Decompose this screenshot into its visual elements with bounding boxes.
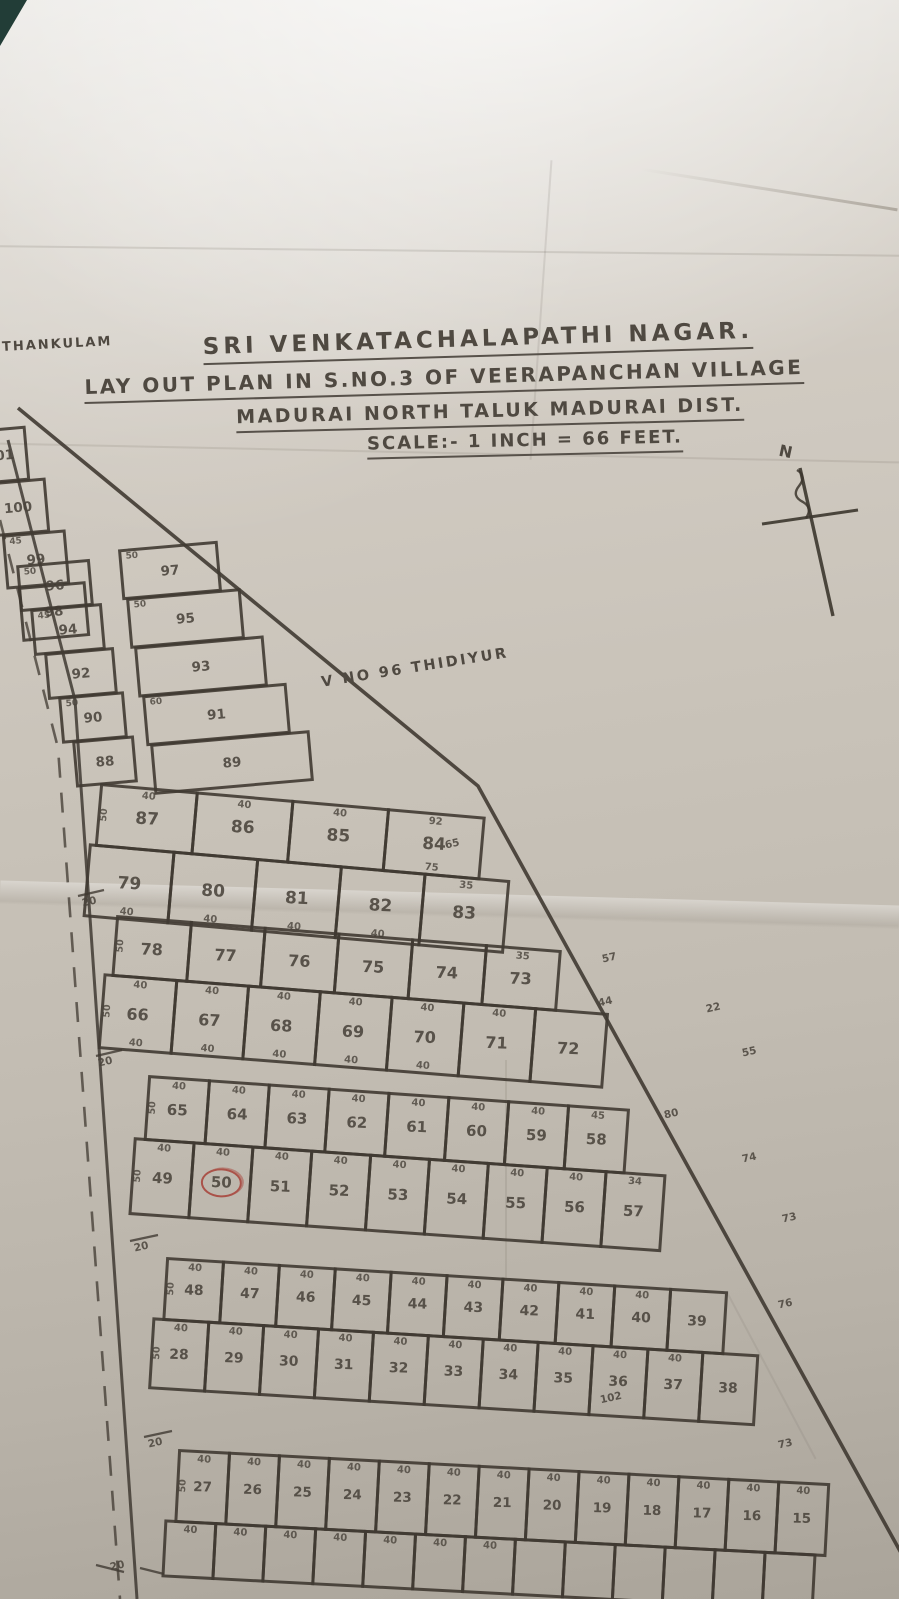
plot-number: 18: [643, 1503, 662, 1519]
plot-cell: 4015: [773, 1480, 830, 1557]
dimension-label: 40: [247, 1457, 261, 1469]
plot-number: 17: [692, 1505, 711, 1521]
dimension-label: 40: [471, 1102, 486, 1114]
plot-number: 62: [346, 1113, 367, 1132]
plot-number: 28: [169, 1347, 189, 1364]
plot-number: 20: [543, 1497, 562, 1513]
plot-number: 76: [288, 951, 311, 971]
plot-number: 19: [593, 1500, 612, 1516]
plot-cell: 4016: [724, 1478, 781, 1555]
plot-cell: 75: [333, 932, 415, 1000]
plot-cell: 4040: [609, 1284, 672, 1351]
plot-number: 79: [117, 873, 142, 894]
dimension-label: 40: [272, 1049, 287, 1061]
plot-cell: 40: [161, 1519, 217, 1580]
dimension-label: 40: [613, 1349, 628, 1361]
plot-cell: 4558: [563, 1104, 630, 1174]
plot-cell: 4020: [524, 1467, 581, 1544]
plot-number: 92: [71, 665, 91, 683]
plot-cell: 40: [261, 1525, 317, 1586]
plot-number: 68: [270, 1015, 293, 1035]
plot-cell: 4041: [554, 1281, 617, 1348]
plot-cell: 3457: [599, 1170, 666, 1252]
plot-number: 86: [230, 817, 255, 838]
plot-number: 66: [126, 1004, 149, 1024]
dimension-label: 40: [128, 1037, 143, 1049]
dimension-label: 45: [9, 536, 22, 547]
dimension-label: 40: [133, 980, 148, 992]
dimension-label: 40: [496, 1470, 510, 1482]
plot-cell: 4030: [258, 1324, 320, 1399]
plot-cell: 4032: [368, 1331, 430, 1406]
plot-number: 58: [586, 1130, 607, 1149]
plot-cell: 4053: [364, 1154, 431, 1236]
plot-cell: 4059: [503, 1100, 570, 1170]
dimension-label: 40: [383, 1535, 397, 1547]
dimension-label: 40: [188, 1262, 203, 1274]
dimension-label: 50: [23, 567, 36, 578]
plot-cell: 402850: [148, 1317, 210, 1392]
plot-cell: 77: [185, 921, 267, 989]
plot-cell: 4061: [383, 1092, 450, 1162]
plot-number: 77: [214, 945, 237, 965]
plot-cell: 38: [697, 1351, 759, 1426]
dimension-label: 40: [393, 1336, 408, 1348]
dimension-label: 40: [467, 1279, 482, 1291]
dimension-label: 45: [37, 611, 50, 622]
plot-cell: 4056: [540, 1166, 607, 1248]
dimension-label: 40: [397, 1464, 411, 1476]
plot-number: 31: [334, 1357, 354, 1374]
dimension-label: 40: [351, 1093, 366, 1105]
dimension-label-vertical: 50: [132, 1169, 144, 1183]
plot-cell: [561, 1540, 617, 1599]
dimension-label: 40: [746, 1483, 760, 1495]
plot-number: 47: [240, 1286, 260, 1303]
dimension-label: 50: [65, 698, 78, 709]
dimension-label: 40: [197, 1454, 211, 1466]
dimension-label: 40: [237, 799, 252, 811]
plot-number: 43: [463, 1300, 483, 1317]
plot-cell: 4042: [498, 1278, 561, 1345]
plot-number: 63: [286, 1109, 307, 1128]
dimension-label: 40: [157, 1143, 172, 1155]
plot-cell: 3573: [480, 944, 562, 1012]
dimension-label: 40: [796, 1485, 810, 1497]
north-arrow: [762, 468, 858, 616]
plot-number: 74: [436, 962, 459, 982]
plot-cell: 4026: [224, 1452, 281, 1529]
strip-plot-cell: 40101: [0, 426, 30, 486]
plot-number: 35: [554, 1370, 574, 1387]
dimension-label: 40: [579, 1286, 594, 1298]
plot-cell: 4021: [474, 1465, 531, 1542]
plot-cell: 74: [406, 938, 488, 1006]
plot-number: 80: [200, 881, 225, 902]
plot-cell: [711, 1548, 767, 1599]
plot-number: 32: [389, 1360, 409, 1377]
dimension-label: 40: [297, 1459, 311, 1471]
dimension-label: 40: [338, 1333, 353, 1345]
plot-number: 41: [575, 1306, 595, 1323]
dimension-label: 40: [276, 991, 291, 1003]
dimension-label: 40: [433, 1537, 447, 1549]
plot-cell: 40: [411, 1532, 467, 1593]
plot-number: 55: [504, 1194, 525, 1213]
dimension-label: 40: [283, 1329, 298, 1341]
plot-number: 64: [226, 1105, 247, 1124]
plot-cell: 4062: [323, 1088, 390, 1158]
dimension-label: 40: [411, 1276, 426, 1288]
dimension-label: 40: [228, 1326, 243, 1338]
dimension-label: 40: [183, 1524, 197, 1536]
plot-number: 33: [444, 1364, 464, 1381]
plot-cell: 4029: [203, 1321, 265, 1396]
dimension-label: 40: [174, 1323, 189, 1335]
dimension-label-vertical: 50: [114, 939, 126, 953]
dimension-label: 40: [531, 1106, 546, 1118]
plot-number: 29: [224, 1350, 244, 1367]
dimension-label: 40: [546, 1472, 560, 1484]
dimension-label: 40: [283, 1530, 297, 1542]
plot-number: 91: [206, 706, 226, 724]
strip-plot-cell: 88: [72, 735, 138, 787]
plot-cell: 4054: [423, 1158, 490, 1240]
dimension-label: 35: [515, 951, 530, 963]
plot-cell: 4023: [374, 1459, 431, 1536]
plot-number: 27: [193, 1479, 212, 1495]
dimension-label-vertical: 50: [165, 1282, 177, 1296]
dimension-label: 40: [216, 1147, 231, 1159]
dimension-label: 40: [483, 1540, 497, 1552]
dimension-label-vertical: 50: [98, 808, 110, 822]
plot-number: 85: [326, 825, 351, 846]
plot-number: 15: [792, 1511, 811, 1527]
plot-cell: 4051: [246, 1145, 313, 1227]
plot-cell: 7850: [111, 915, 193, 983]
plot-cell: 4064: [203, 1079, 270, 1149]
plot-number: 90: [83, 709, 103, 727]
dimension-label: 40: [172, 1081, 187, 1093]
dimension-label: 40: [569, 1172, 584, 1184]
dimension-label: 40: [347, 1462, 361, 1474]
plot-number: 45: [351, 1293, 371, 1310]
plot-cell: 4025: [274, 1454, 331, 1531]
plot-number: 60: [466, 1122, 487, 1141]
plot-number: 78: [141, 939, 164, 959]
dimension-label: 40: [668, 1353, 683, 1365]
dimension-label: 40: [503, 1343, 518, 1355]
plot-number: 95: [175, 610, 195, 628]
plot-number: 61: [406, 1118, 427, 1137]
strip-plot-cell: 100: [0, 477, 50, 537]
plot-cell: 4036: [587, 1344, 649, 1419]
plot-cell: 4045: [330, 1267, 393, 1334]
plot-number: 75: [362, 956, 385, 976]
plot-number: 38: [718, 1380, 738, 1397]
plot-cell: 40664050: [98, 973, 179, 1055]
plot-number: 21: [493, 1495, 512, 1511]
dimension-label: 40: [510, 1168, 525, 1180]
dimension-label: 40: [420, 1002, 435, 1014]
plot-cell: 72: [528, 1007, 609, 1089]
dimension-label: 40: [355, 1273, 370, 1285]
plot-number: 73: [509, 968, 532, 988]
plot-cell: 4043: [442, 1274, 505, 1341]
plot-cell: 4019: [574, 1470, 631, 1547]
plot-cell: 4046: [274, 1264, 337, 1331]
plot-cell: 4050: [187, 1141, 254, 1223]
plot-number: 24: [343, 1487, 362, 1503]
dimension-label: 40: [492, 1008, 507, 1020]
plot-number: 44: [407, 1296, 427, 1313]
plot-cell: 7940: [83, 843, 176, 924]
plot-cell: 4047: [218, 1260, 281, 1327]
plot-cell: 4018: [624, 1473, 681, 1550]
dimension-label: 40: [333, 1532, 347, 1544]
plot-number: 25: [293, 1484, 312, 1500]
dimension-label: 50: [133, 599, 146, 610]
plot-number: 52: [328, 1181, 349, 1200]
plot-number: 40: [631, 1310, 651, 1327]
plot-cell: 40: [361, 1530, 417, 1591]
plot-cell: 40: [461, 1535, 517, 1596]
plot-number: 89: [222, 754, 242, 772]
plot-number: 70: [414, 1027, 437, 1047]
dimension-label: 40: [233, 1527, 247, 1539]
plot-number: 23: [393, 1490, 412, 1506]
plot-number: 30: [279, 1353, 299, 1370]
dimension-label: 40: [523, 1283, 538, 1295]
plot-cell: 4060: [443, 1096, 510, 1166]
plot-number: 84: [421, 834, 446, 855]
dimension-label-vertical: 50: [177, 1479, 189, 1493]
plot-cell: 4024: [324, 1457, 381, 1534]
dimension-label: 40: [596, 1475, 610, 1487]
dimension-label: 40: [300, 1269, 315, 1281]
plot-cell: [611, 1543, 667, 1599]
plot-number: 39: [687, 1313, 707, 1330]
plot-cell: 4022: [424, 1462, 481, 1539]
dimension-label: 45: [591, 1110, 606, 1122]
plot-cell: 76: [259, 927, 341, 995]
dimension-label: 60: [149, 697, 162, 708]
plot-cell: 406840: [241, 984, 322, 1066]
dimension-label-vertical: 50: [147, 1101, 159, 1115]
plot-number: 83: [451, 903, 476, 924]
dimension-label: 50: [125, 551, 138, 562]
dimension-label: 92: [428, 816, 443, 828]
plot-number: 67: [198, 1010, 221, 1030]
dimension-label: 40: [646, 1478, 660, 1490]
plot-cell: 4037: [642, 1348, 704, 1423]
plot-number: 100: [3, 498, 32, 516]
plot-number: 42: [519, 1303, 539, 1320]
dimension-label: 40: [274, 1151, 289, 1163]
dimension-label-vertical: 50: [151, 1346, 163, 1360]
dimension-label: 40: [200, 1043, 215, 1055]
plot-cell: 404850: [162, 1257, 225, 1324]
plot-cell: 406740: [169, 979, 250, 1061]
dimension-label: 40: [411, 1097, 426, 1109]
plot-number: 87: [134, 809, 159, 830]
dimension-label: 40: [141, 791, 156, 803]
photo-of-layout-plan: THANKULAM SRI VENKATACHALAPATHI NAGAR. L…: [0, 0, 899, 1599]
dimension-label: 40: [231, 1085, 246, 1097]
plot-cell: 4071: [457, 1001, 538, 1083]
dimension-label-vertical: 50: [101, 1004, 113, 1018]
dimension-label: 40: [244, 1266, 259, 1278]
plot-number: 49: [151, 1169, 172, 1188]
plot-number: 93: [191, 658, 211, 676]
dimension-label: 35: [459, 880, 474, 892]
dimension-label: 40: [415, 1060, 430, 1072]
plot-number: 88: [95, 753, 115, 771]
dimension-label: 40: [333, 807, 348, 819]
plot-number: 51: [269, 1177, 290, 1196]
plot-cell: 4063: [263, 1083, 330, 1153]
plot-number: 37: [663, 1377, 683, 1394]
plot-number: 57: [622, 1202, 643, 1221]
plot-cell: 4044: [386, 1271, 449, 1338]
plot-number: 69: [342, 1021, 365, 1041]
plot-number: 101: [0, 446, 15, 464]
plot-cell: 4052: [305, 1150, 372, 1232]
plot-cell: 40: [311, 1527, 367, 1588]
plot-number: 34: [499, 1367, 519, 1384]
plot-number: 65: [167, 1101, 188, 1120]
plot-number: 46: [296, 1289, 316, 1306]
plot-number: 36: [608, 1374, 628, 1391]
dimension-label: 40: [291, 1089, 306, 1101]
dimension-label: 40: [451, 1163, 466, 1175]
dimension-label: 40: [447, 1467, 461, 1479]
plot-number: 81: [284, 888, 309, 909]
plot-number-circled-red: 50: [200, 1167, 242, 1197]
plot-cell: 4033: [423, 1334, 485, 1409]
plot-cell: 4017: [674, 1475, 731, 1552]
plot-number: 54: [446, 1189, 467, 1208]
plot-number: 71: [485, 1032, 508, 1052]
dimension-label: 40: [448, 1339, 463, 1351]
plot-number: 56: [563, 1198, 584, 1217]
plot-cell: 402750: [174, 1449, 231, 1526]
plot-number: 94: [58, 621, 78, 639]
dimension-label: 40: [205, 985, 220, 997]
plot-cell: 407040: [385, 996, 466, 1078]
plot-cell: [761, 1551, 817, 1599]
plot-number: 59: [526, 1126, 547, 1145]
plot-cell: 4034: [477, 1337, 539, 1412]
plot-cell: [661, 1546, 717, 1599]
dimension-label: 40: [558, 1346, 573, 1358]
plot-cell: 39: [665, 1288, 728, 1355]
plot-cell: 40: [211, 1522, 267, 1583]
dimension-label: 40: [696, 1480, 710, 1492]
plot-cell: [511, 1538, 567, 1599]
dimension-label: 40: [635, 1290, 650, 1302]
dimension-label: 40: [348, 997, 363, 1009]
plot-number: 96: [45, 577, 65, 595]
dimension-label: 40: [344, 1054, 359, 1066]
plot-number: 53: [387, 1185, 408, 1204]
plot-number: 72: [557, 1038, 580, 1058]
plot-number: 26: [243, 1482, 262, 1498]
plot-cell: 406550: [144, 1075, 211, 1145]
plot-cell: 4035: [532, 1341, 594, 1416]
dimension-label: 40: [392, 1159, 407, 1171]
plot-number: 97: [160, 562, 180, 580]
plot-cell: 4055: [482, 1162, 549, 1244]
plot-cell: 406940: [313, 990, 394, 1072]
dimension-label: 40: [333, 1155, 348, 1167]
plot-cell: 4031: [313, 1327, 375, 1402]
dimension-label: 34: [628, 1176, 643, 1188]
plot-number: 48: [184, 1282, 204, 1299]
plot-number: 22: [443, 1492, 462, 1508]
plot-cell: 404950: [128, 1137, 195, 1219]
plot-number: 82: [368, 895, 393, 916]
plot-number: 16: [742, 1508, 761, 1524]
